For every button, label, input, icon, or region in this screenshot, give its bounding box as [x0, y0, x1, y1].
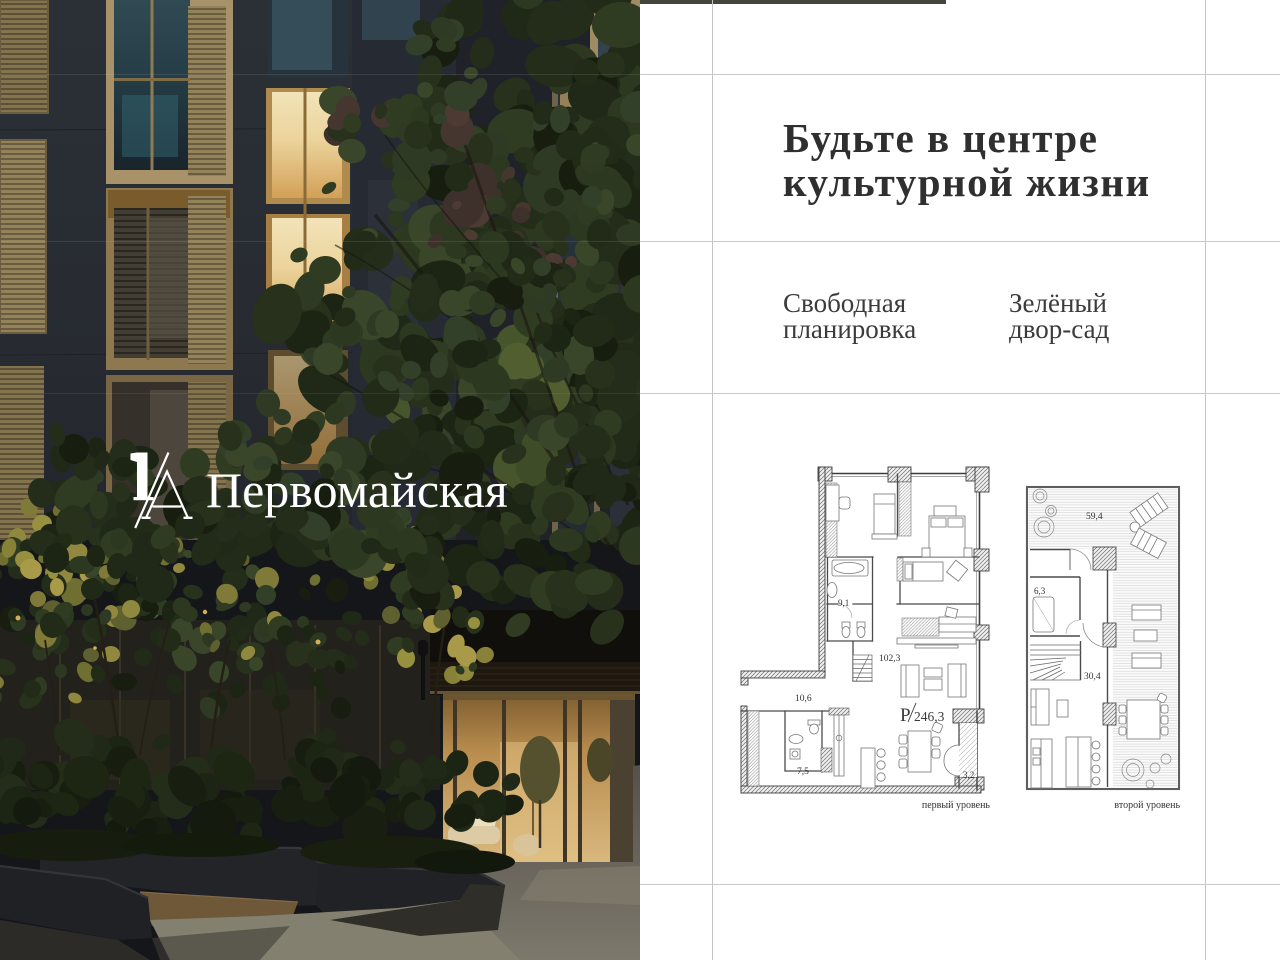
- svg-text:3,2: 3,2: [963, 770, 974, 780]
- svg-text:246,3: 246,3: [914, 709, 945, 724]
- svg-text:10,6: 10,6: [795, 694, 812, 704]
- svg-text:9,1: 9,1: [838, 598, 849, 608]
- svg-text:59,4: 59,4: [1086, 512, 1103, 522]
- svg-text:30,4: 30,4: [1084, 672, 1101, 682]
- svg-text:7,5: 7,5: [797, 767, 809, 777]
- svg-text:102,3: 102,3: [879, 654, 901, 664]
- svg-text:6,3: 6,3: [1034, 586, 1046, 596]
- svg-text:Первомайская: Первомайская: [206, 462, 508, 518]
- svg-text:Р: Р: [900, 705, 911, 726]
